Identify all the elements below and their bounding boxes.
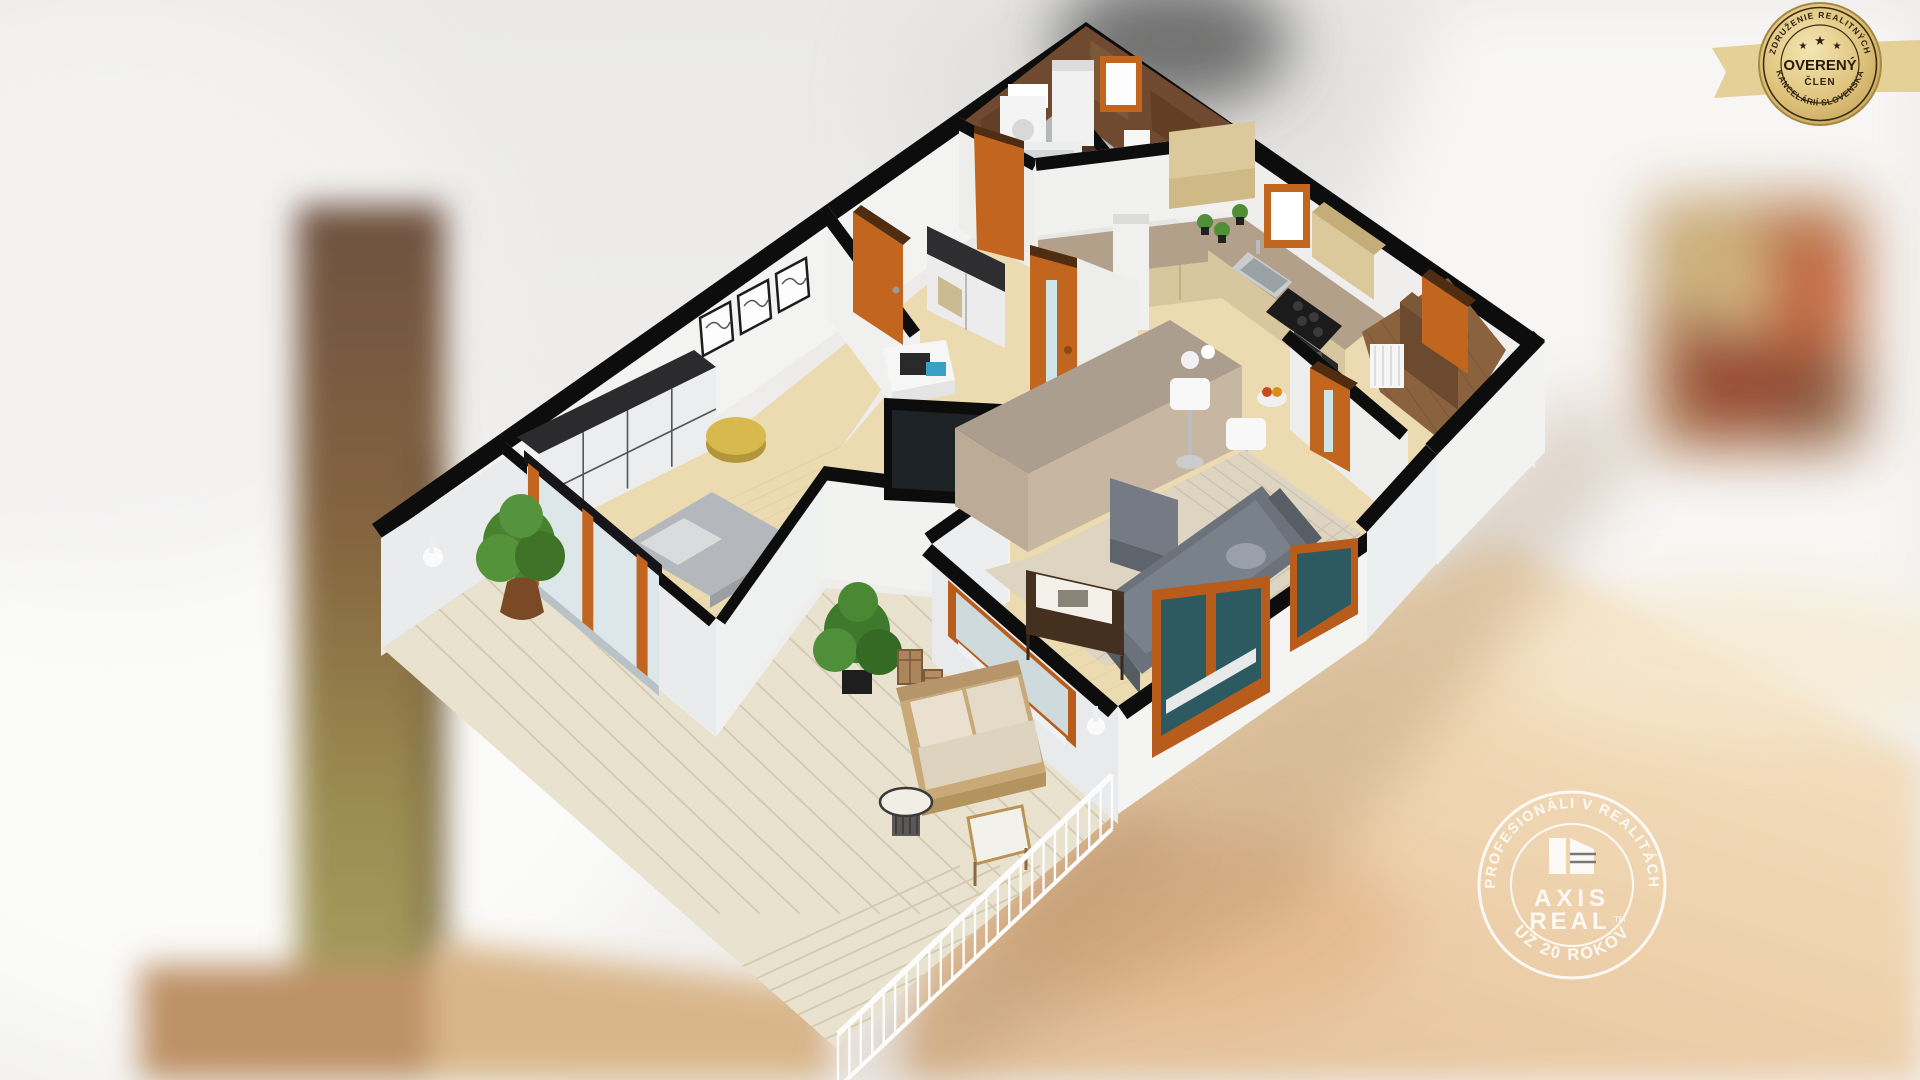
- svg-text:OVERENÝ: OVERENÝ: [1783, 56, 1856, 74]
- svg-text:★: ★: [1833, 41, 1842, 52]
- svg-text:★: ★: [1814, 33, 1826, 48]
- svg-text:REAL: REAL: [1529, 908, 1610, 935]
- svg-text:ČLEN: ČLEN: [1804, 75, 1835, 88]
- svg-text:★: ★: [1799, 41, 1808, 52]
- svg-text:TM: TM: [1614, 915, 1626, 924]
